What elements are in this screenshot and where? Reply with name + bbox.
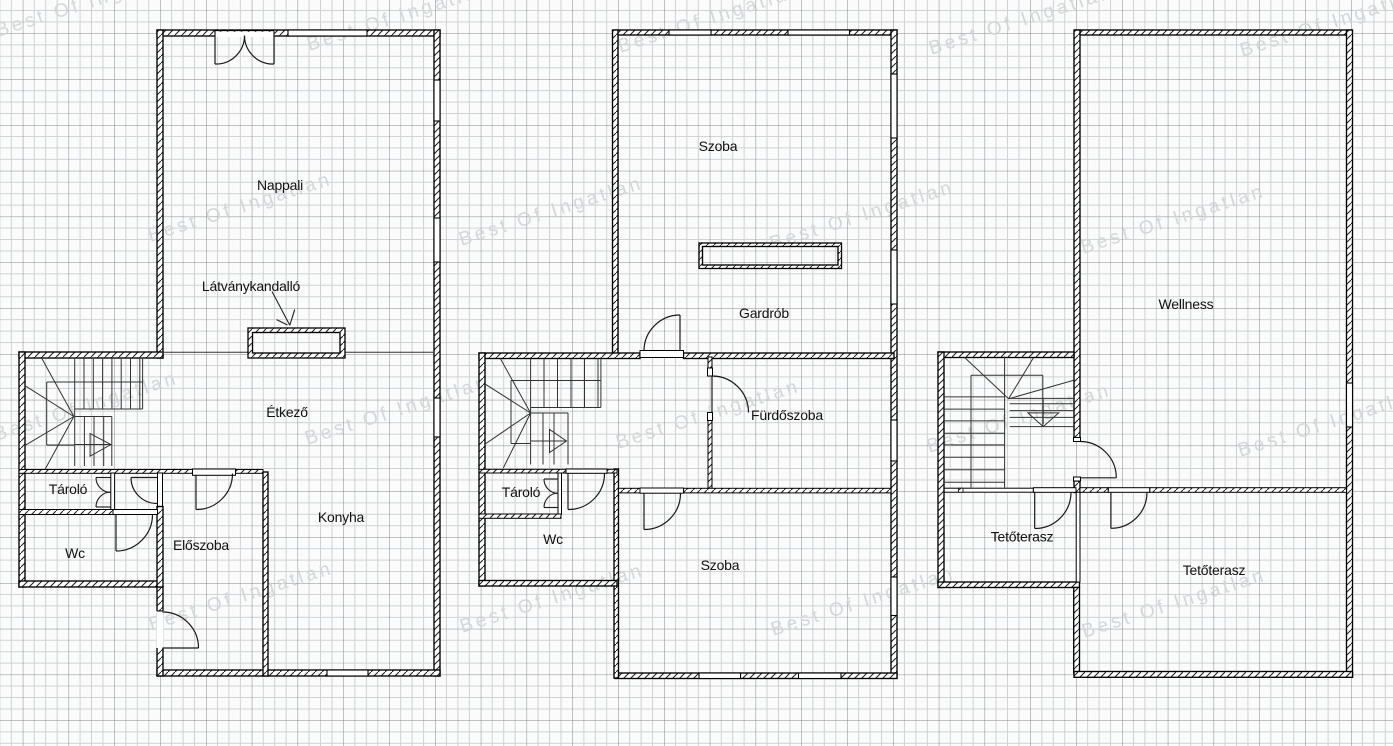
svg-text:Előszoba: Előszoba xyxy=(173,537,229,553)
svg-text:Szoba: Szoba xyxy=(699,138,738,154)
svg-text:Nappali: Nappali xyxy=(257,177,303,193)
svg-text:Látványkandalló: Látványkandalló xyxy=(202,278,301,294)
svg-text:Wc: Wc xyxy=(543,531,563,547)
svg-text:Fürdőszoba: Fürdőszoba xyxy=(751,407,823,423)
svg-text:Tároló: Tároló xyxy=(49,481,88,497)
svg-text:Wellness: Wellness xyxy=(1159,296,1214,312)
svg-text:Tetőterasz: Tetőterasz xyxy=(1183,562,1246,578)
svg-text:Konyha: Konyha xyxy=(318,509,365,525)
svg-text:Tetőterasz: Tetőterasz xyxy=(991,529,1054,545)
svg-text:Szoba: Szoba xyxy=(701,557,740,573)
svg-text:Gardrób: Gardrób xyxy=(739,305,789,321)
svg-text:Wc: Wc xyxy=(65,545,85,561)
svg-text:Tároló: Tároló xyxy=(502,484,541,500)
svg-text:Étkező: Étkező xyxy=(266,404,308,420)
